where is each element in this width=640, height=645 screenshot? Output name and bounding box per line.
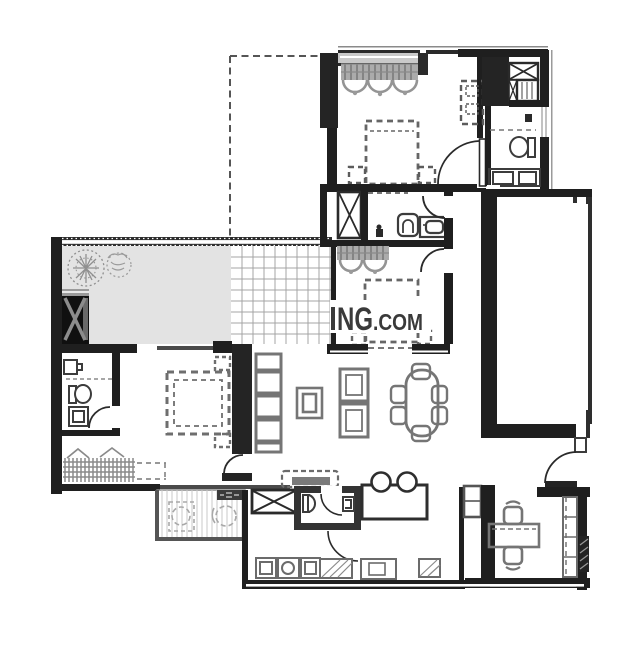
svg-text:.COM: .COM bbox=[373, 309, 423, 335]
svg-text:NG: NG bbox=[337, 301, 373, 337]
